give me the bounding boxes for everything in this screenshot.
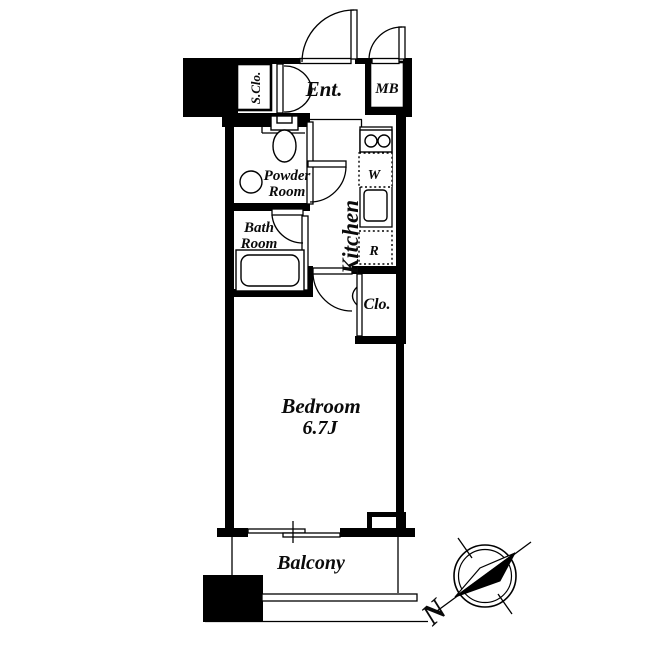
labels: S.Clo. Ent. MB Powder Room Bath Room Kit… — [240, 72, 455, 633]
balcony-label: Balcony — [276, 552, 345, 574]
balcony-structure — [203, 537, 428, 622]
shoe-closet-label: S.Clo. — [248, 72, 263, 105]
compass-icon — [437, 538, 531, 614]
balcony-pillar-block — [203, 575, 263, 622]
floorplan-drawing: S.Clo. Ent. MB Powder Room Bath Room Kit… — [0, 0, 650, 650]
kitchen-sink-icon — [364, 190, 387, 221]
powder-room-label-line1: Powder — [264, 168, 311, 184]
entrance-label: Ent. — [305, 77, 343, 101]
powder-room-label-line2: Room — [268, 184, 306, 200]
window-pane-right — [283, 533, 340, 537]
wall-closet-right — [396, 274, 406, 342]
north-label: N — [414, 592, 454, 633]
bathtub-icon — [241, 255, 299, 286]
mb-door-arc — [369, 27, 402, 60]
mb-door-panel — [399, 27, 405, 59]
stove-burner-right-icon — [378, 135, 390, 147]
bath-door-panel — [272, 209, 303, 215]
kitchen-door-panel — [308, 161, 346, 167]
bedroom-door-arc — [313, 274, 352, 311]
sink-icon — [240, 171, 262, 193]
meter-box-label: MB — [374, 81, 398, 97]
wall-bedroom-right — [396, 342, 404, 517]
bath-room-label-line2: Room — [240, 236, 278, 252]
kitchen-label: Kitchen — [338, 200, 363, 275]
stove-burner-left-icon — [365, 135, 377, 147]
closet-label: Clo. — [363, 296, 390, 313]
shoe-closet-door-frame — [277, 64, 283, 113]
compass-tick-nw — [458, 538, 472, 558]
entrance-door-arc — [302, 10, 354, 62]
bedroom-area-label: 6.7J — [303, 417, 339, 439]
bath-room-label-line1: Bath — [243, 220, 274, 236]
closet-fold-door-mark — [353, 287, 358, 305]
compass-tick-se — [498, 594, 512, 614]
wall-kitchen-right — [396, 113, 406, 274]
refrigerator-label: R — [368, 244, 378, 259]
balcony-railing — [262, 594, 417, 601]
mb-threshold — [372, 59, 399, 64]
washer-label: W — [368, 168, 382, 183]
bedroom-label: Bedroom — [280, 394, 360, 418]
balcony-step-notch — [372, 517, 396, 528]
wall-top-left-block — [183, 58, 238, 117]
toilet-bowl-icon — [273, 130, 296, 162]
toilet-tank-lid-icon — [277, 116, 292, 123]
wall-left — [225, 113, 234, 537]
floorplan-canvas: S.Clo. Ent. MB Powder Room Bath Room Kit… — [0, 0, 650, 650]
entrance-threshold — [300, 59, 351, 64]
kitchen-door-arc — [310, 167, 346, 202]
wall-closet-left-thin — [357, 274, 362, 336]
entrance-door-panel — [351, 10, 357, 59]
